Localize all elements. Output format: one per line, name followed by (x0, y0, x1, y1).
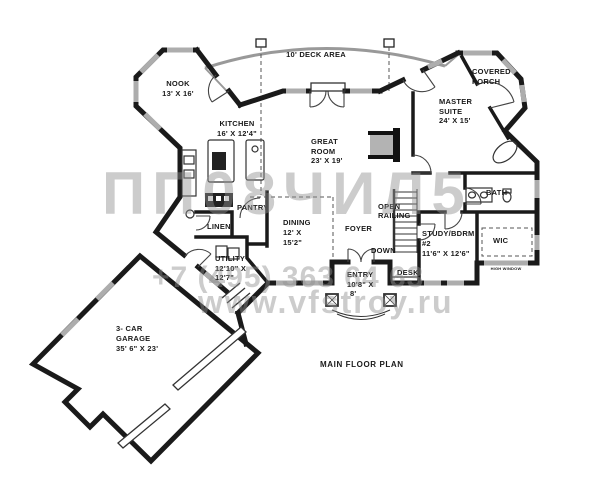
floor-plan: 10' DECK AREA NOOK 13' X 16' COVERED POR… (0, 0, 600, 486)
deck-railing (205, 39, 459, 104)
nook-label: NOOK (166, 79, 190, 88)
deck-label: 10' DECK AREA (286, 50, 346, 59)
deck-post (256, 39, 266, 47)
deck-edges (205, 54, 459, 104)
kitchen-dims: 16' X 12'4" (217, 129, 257, 138)
nook-dims: 13' X 16' (162, 89, 194, 98)
study-label: STUDY/BDRM (422, 229, 475, 238)
garage-door-panel (173, 327, 246, 390)
dining-dims2: 15'2" (283, 238, 302, 247)
garage-door-panel (118, 404, 170, 448)
down-label: DOWN (371, 246, 396, 255)
study-label2: #2 (422, 239, 431, 248)
fireplace-hearth (370, 134, 393, 156)
high-window-label: HIGH WINDOW (491, 266, 522, 271)
kitchen-label: KITCHEN (219, 119, 254, 128)
plan-title: MAIN FLOOR PLAN (320, 360, 404, 369)
fireplace-side (368, 131, 395, 135)
cooktop (252, 146, 258, 152)
french-door-panel (311, 83, 345, 91)
fireplace-side (368, 155, 395, 159)
bath-label: BATH (486, 188, 507, 197)
master-suite-label2: SUITE (439, 107, 462, 116)
deck-post (384, 39, 394, 47)
garage-label2: GARAGE (116, 334, 150, 343)
great-room-label2: ROOM (311, 147, 335, 156)
master-suite-dims: 24' X 15' (439, 116, 471, 125)
garage-label: 3- CAR (116, 324, 143, 333)
garage-dims: 35' 6" X 23' (116, 344, 158, 353)
watermark-site: www.vfstroy.ru (197, 284, 454, 320)
wic-label: WIC (493, 236, 509, 245)
master-suite-label: MASTER (439, 97, 473, 106)
dining-dims: 12' X (283, 228, 301, 237)
great-room-label: GREAT (311, 137, 338, 146)
watermark-logo: ПП08ЧИЛ5 (102, 160, 472, 227)
covered-porch-label2: PORCH (472, 77, 500, 86)
study-dims: 11'6" X 12'6" (422, 249, 470, 258)
floor-plan-drawing: 10' DECK AREA NOOK 13' X 16' COVERED POR… (0, 0, 600, 486)
covered-porch-label: COVERED (472, 67, 511, 76)
